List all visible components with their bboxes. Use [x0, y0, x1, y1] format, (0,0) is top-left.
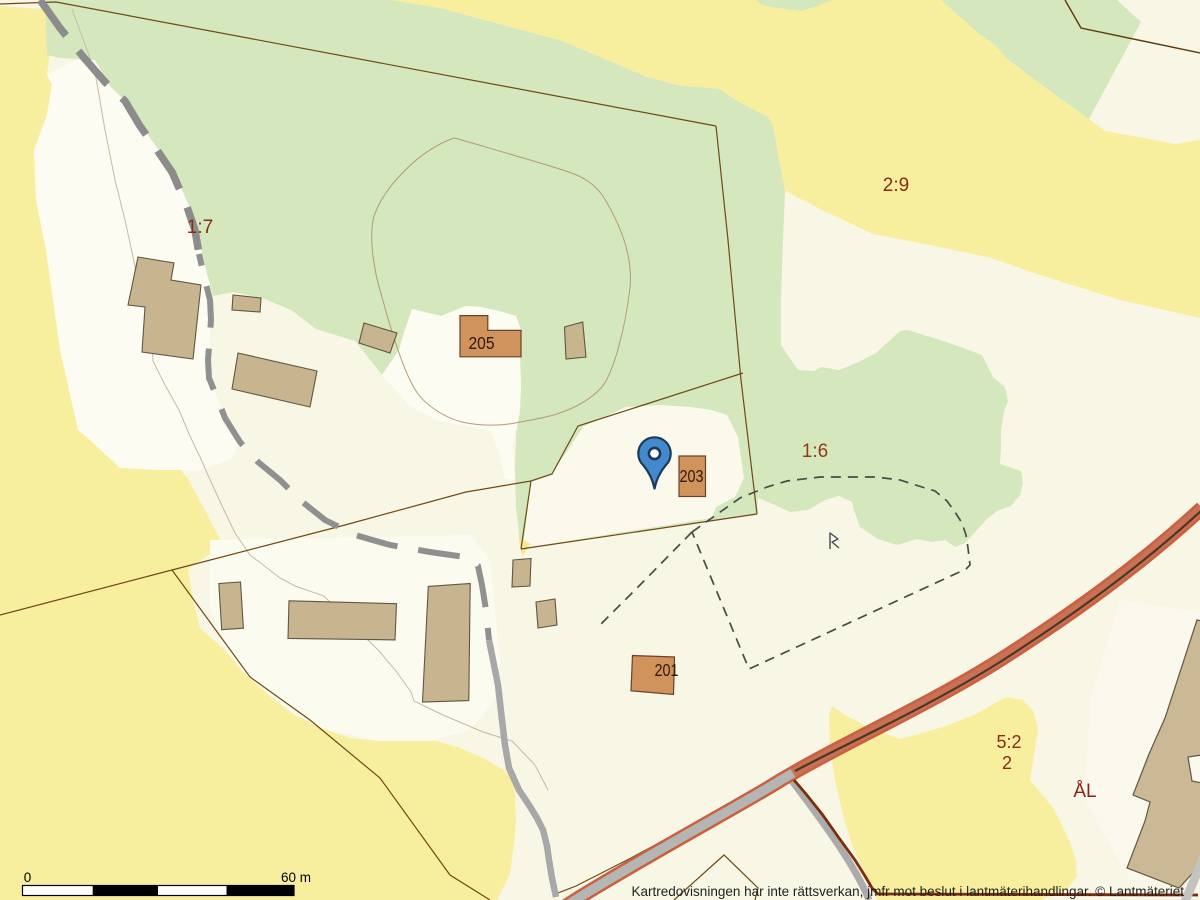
svg-text:205: 205 — [469, 333, 495, 353]
svg-text:0: 0 — [24, 870, 32, 885]
svg-text:2:9: 2:9 — [883, 175, 909, 196]
svg-text:1:6: 1:6 — [802, 441, 828, 462]
svg-text:1:7: 1:7 — [187, 217, 213, 238]
svg-text:ÅL: ÅL — [1073, 781, 1096, 802]
svg-text:5:2: 5:2 — [996, 732, 1021, 752]
svg-text:201: 201 — [655, 660, 679, 680]
svg-text:2: 2 — [1002, 753, 1012, 773]
svg-text:203: 203 — [680, 466, 704, 486]
svg-text:Kartredovisningen har inte rät: Kartredovisningen har inte rättsverkan, … — [632, 884, 1185, 899]
svg-text:60 m: 60 m — [281, 870, 311, 885]
